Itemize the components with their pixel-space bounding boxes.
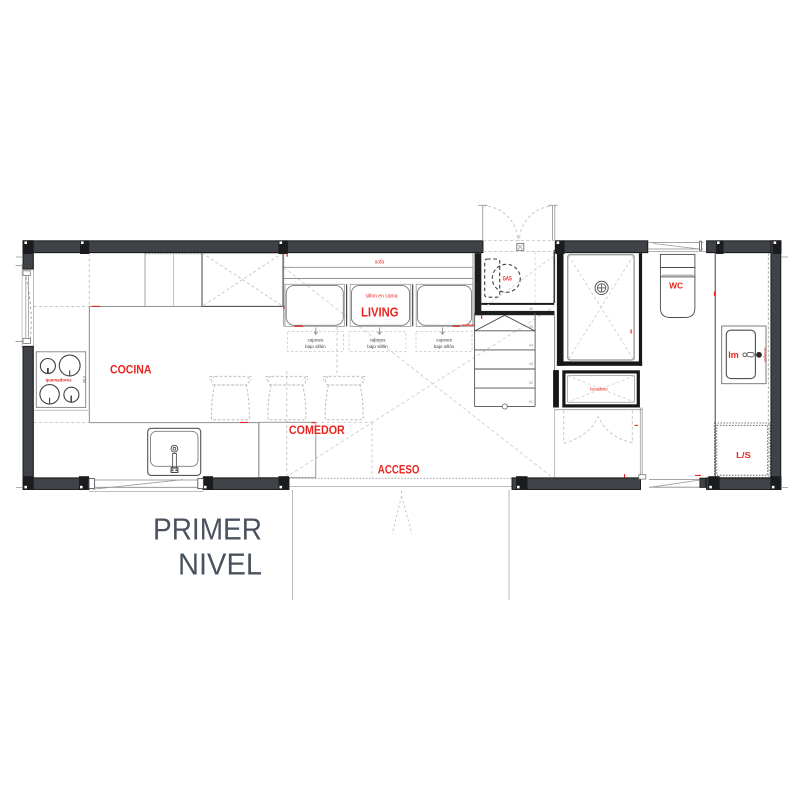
svg-text:GAS: GAS [503,276,512,283]
svg-text:05: 05 [529,325,533,329]
svg-text:sofa: sofa [375,259,385,265]
svg-text:L/S: L/S [736,450,751,460]
svg-text:WC: WC [669,281,683,291]
svg-text:LIVING: LIVING [361,304,399,319]
svg-text:03: 03 [529,362,533,366]
svg-text:02: 02 [529,381,533,385]
svg-text:bajo sillón: bajo sillón [434,344,455,349]
svg-text:ACCESO: ACCESO [378,462,420,476]
svg-text:lm: lm [728,350,739,360]
svg-text:cajones: cajones [308,338,325,343]
svg-text:COCINA: COCINA [110,363,152,376]
svg-text:PRIMER: PRIMER [153,511,262,546]
svg-text:cajones: cajones [370,338,387,343]
svg-text:COMEDOR: COMEDOR [289,423,345,437]
svg-text:0.60: 0.60 [82,376,86,383]
svg-text:bajo sillón: bajo sillón [305,344,326,349]
svg-text:cajones: cajones [436,338,453,343]
svg-text:04: 04 [529,343,533,347]
svg-text:bajo sillón: bajo sillón [367,344,388,349]
svg-text:01: 01 [529,400,533,404]
svg-text:sillon en cama: sillon en cama [366,294,398,300]
svg-text:lavadero: lavadero [590,386,608,391]
svg-text:06: 06 [529,307,533,311]
svg-text:NIVEL: NIVEL [178,546,262,581]
svg-text:quemadores: quemadores [45,377,72,382]
svg-text:desague: desague [763,348,767,363]
